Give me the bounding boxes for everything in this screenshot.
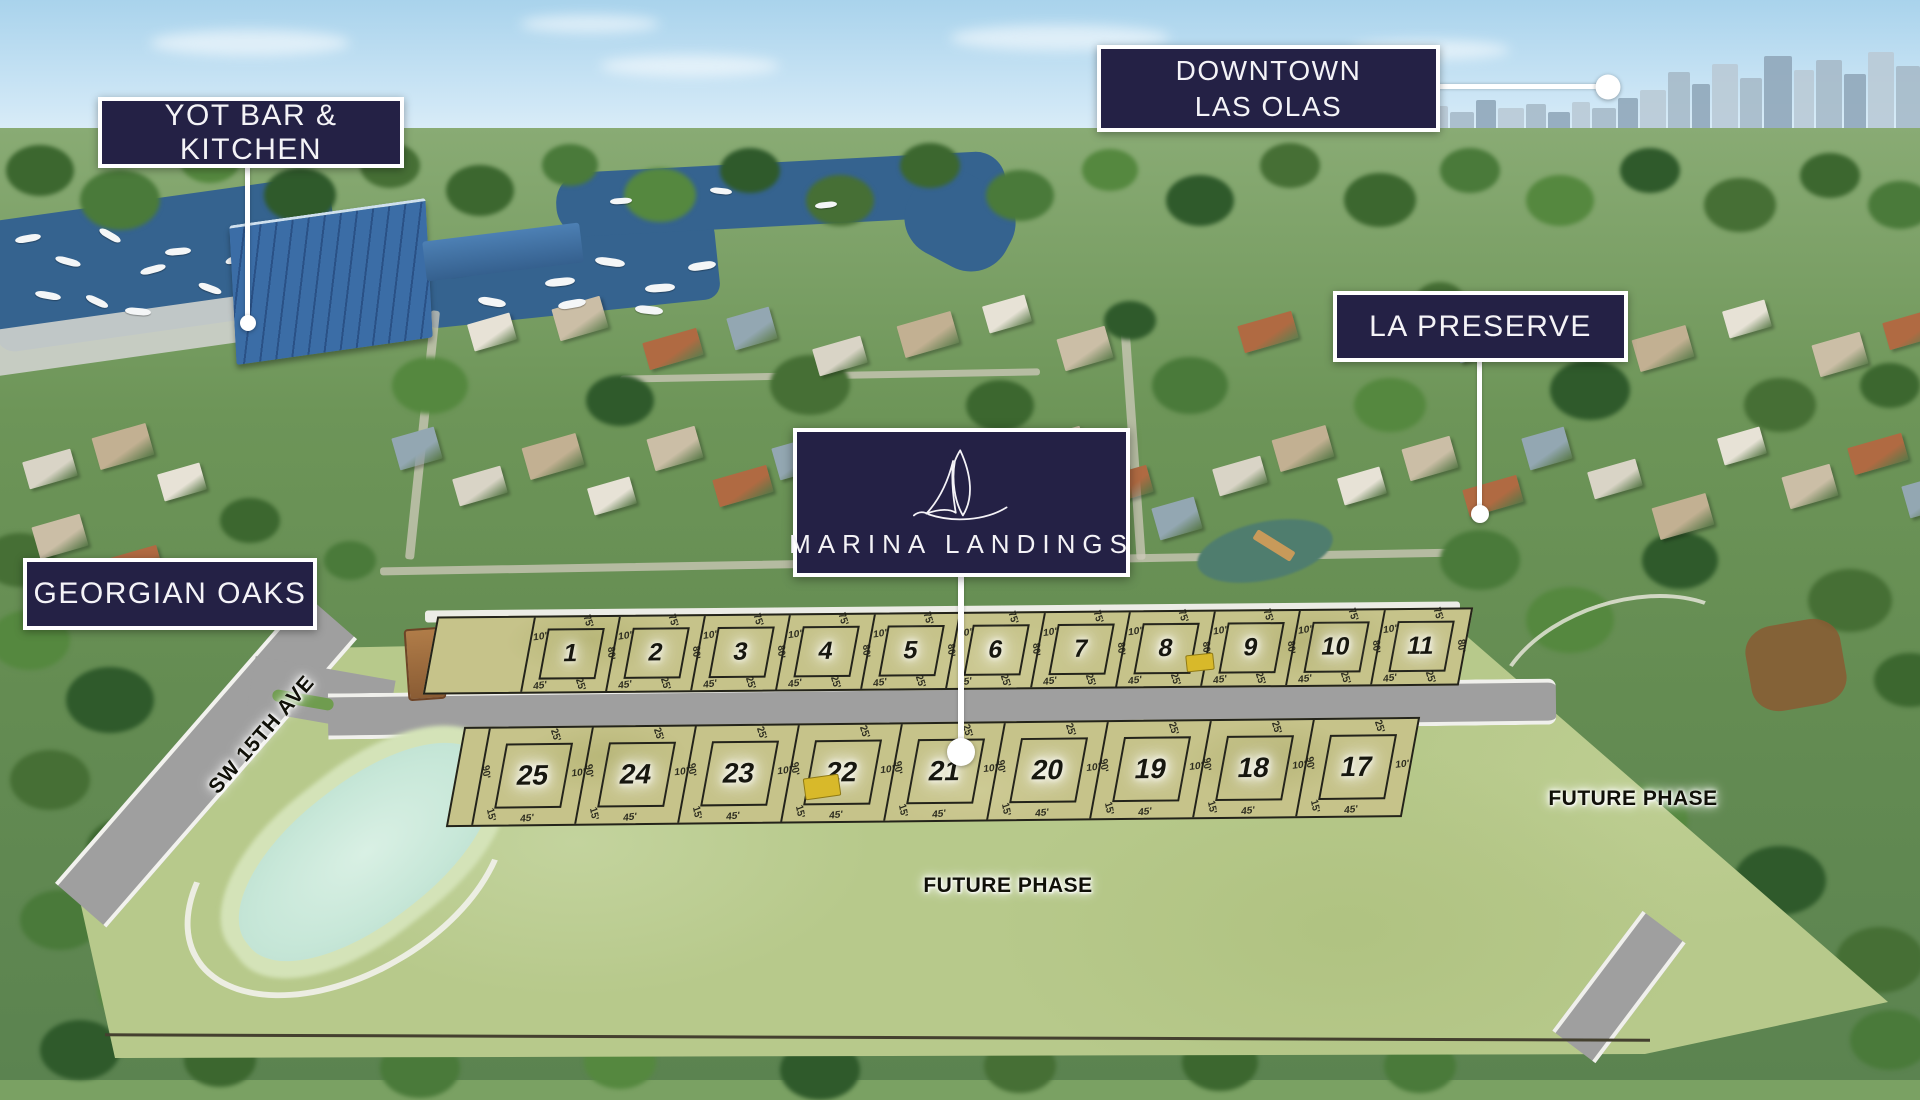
lot-row-south: 2525'10'90'15'45'2425'10'90'15'45'2325'1… — [446, 717, 1420, 827]
lot-dimension: 15' — [1205, 799, 1218, 816]
lot-dimension: 15' — [690, 805, 703, 822]
city-building — [1816, 60, 1842, 138]
lot-dimension: 45' — [1035, 807, 1050, 820]
lot-dimension: 45' — [1128, 674, 1142, 687]
lot-dimension: 45' — [618, 679, 632, 692]
lot-parcel-21: 2125'10'90'15'45' — [883, 723, 1004, 820]
city-building — [1868, 52, 1894, 138]
tree — [542, 144, 598, 186]
lot-parcel-23: 2325'10'90'15'45' — [677, 725, 798, 822]
lot-number: 19 — [1132, 753, 1169, 785]
lot-dimension: 45' — [829, 809, 844, 822]
lot-dimension: 10' — [1383, 623, 1397, 636]
lot-dimension: 25' — [754, 725, 768, 742]
marina-landings-leader-line — [958, 569, 964, 747]
lot-dimension: 90' — [1303, 756, 1315, 772]
lot-dimension: 90' — [994, 759, 1006, 775]
tree — [392, 357, 468, 414]
callout-downtown-line2: LAS OLAS — [1195, 91, 1342, 122]
tree — [10, 750, 90, 810]
callout-yot-bar-kitchen: YOT BAR & KITCHEN — [98, 97, 404, 168]
lot-parcel-17: 1725'10'90'15'45' — [1295, 719, 1416, 816]
tree — [1850, 1010, 1920, 1070]
lot-dimension: 15' — [484, 807, 497, 824]
lot-row-north: 175'10'80'45'25'275'10'80'45'25'375'10'8… — [423, 607, 1473, 694]
tree — [40, 1020, 120, 1080]
tree — [1704, 178, 1776, 232]
lot-dimension: 80' — [1456, 638, 1468, 654]
callout-georgian-oaks: GEORGIAN OAKS — [23, 558, 317, 630]
tree — [1152, 357, 1228, 414]
marina-landings-logo-name: MARINA LANDINGS — [789, 529, 1134, 560]
lot-dimension: 45' — [623, 811, 638, 824]
tree — [1642, 532, 1718, 589]
lot-number: 20 — [1029, 754, 1066, 786]
lot-parcel-22: 2225'10'90'15'45' — [780, 724, 901, 821]
lot-dimension: 45' — [1241, 805, 1256, 818]
callout-georgian-label: GEORGIAN OAKS — [34, 577, 307, 611]
lot-dimension: 15' — [793, 804, 806, 821]
downtown-location-dot — [1596, 75, 1621, 100]
lot-dimension: 90' — [583, 764, 595, 780]
tree — [966, 380, 1034, 431]
cloud — [600, 55, 780, 77]
lot-dimension: 10' — [788, 628, 802, 641]
tree — [1260, 143, 1320, 188]
downtown-leader-line — [1436, 84, 1602, 89]
tree — [586, 375, 654, 426]
lot-parcel-3: 375'10'80'45'25' — [690, 615, 789, 690]
marina-landings-logo-card: MARINA LANDINGS — [793, 428, 1130, 577]
marina-warehouse-building — [229, 198, 432, 365]
tree — [1344, 173, 1416, 227]
callout-downtown-label: DOWNTOWN LAS OLAS — [1176, 53, 1362, 125]
tree — [1526, 175, 1594, 226]
tree — [1800, 153, 1860, 198]
lot-dimension: 45' — [703, 678, 717, 691]
tree — [66, 667, 154, 733]
future-phase-label-center: FUTURE PHASE — [923, 874, 1092, 898]
lot-parcel-9: 975'10'80'45'25' — [1200, 611, 1299, 686]
tree — [1166, 175, 1234, 226]
lot-dimension: 10' — [703, 629, 717, 642]
lot-number: 24 — [617, 758, 654, 790]
tree — [1440, 148, 1500, 193]
future-phase-label-east: FUTURE PHASE — [1548, 787, 1717, 811]
lot-dimension: 10' — [873, 628, 887, 641]
tree — [220, 498, 280, 543]
lot-dimension: 45' — [788, 677, 802, 690]
lot-parcel-18: 1825'10'90'15'45' — [1192, 720, 1313, 817]
tree — [900, 143, 960, 188]
tree — [80, 170, 160, 230]
lot-dimension: 10' — [1213, 625, 1227, 638]
lot-parcel-11: 1175'10'80'45'25' — [1370, 609, 1469, 684]
lot-dimension: 45' — [873, 677, 887, 690]
lot-dimension: 10' — [1043, 626, 1057, 639]
callout-downtown-las-olas: DOWNTOWN LAS OLAS — [1097, 45, 1440, 132]
tree — [1440, 530, 1520, 590]
tree — [624, 168, 696, 222]
tree — [6, 145, 74, 196]
sailboat-icon — [899, 445, 1025, 527]
lot-dimension: 45' — [1298, 673, 1312, 686]
lot-dimension: 90' — [480, 765, 492, 781]
tree — [1744, 378, 1816, 432]
lot-dimension: 15' — [587, 806, 600, 823]
lot-dimension: 45' — [1043, 675, 1057, 688]
lot-dimension: 15' — [1308, 798, 1321, 815]
lot-dimension: 15' — [999, 801, 1012, 818]
city-building — [1712, 64, 1738, 138]
lot-number: 10 — [1319, 632, 1352, 661]
tree — [1104, 301, 1156, 340]
lot-dimension: 25' — [1166, 720, 1180, 737]
tree — [806, 175, 874, 226]
preserve-location-dot — [1471, 505, 1489, 523]
lot-number: 25 — [514, 759, 551, 791]
tree — [324, 541, 376, 580]
tree — [1620, 148, 1680, 193]
lot-number: 11 — [1405, 632, 1437, 661]
lot-parcel-5: 575'10'80'45'25' — [860, 614, 959, 689]
lot-parcel-25: 2525'10'90'15'45' — [471, 728, 592, 825]
lot-number: 18 — [1235, 752, 1272, 784]
lot-dimension: 25' — [1372, 718, 1386, 735]
construction-loader-vehicle — [1185, 653, 1215, 673]
lot-dimension: 45' — [1138, 806, 1153, 819]
lot-dimension: 90' — [1200, 757, 1212, 773]
lot-dimension: 45' — [726, 810, 741, 823]
tree — [986, 170, 1054, 221]
tree — [1354, 378, 1426, 432]
lot-dimension: 25' — [651, 726, 665, 743]
lot-dimension: 10' — [1128, 625, 1142, 638]
lot-parcel-8: 875'10'80'45'25' — [1115, 612, 1214, 687]
cloud — [150, 30, 350, 56]
tree — [1550, 360, 1630, 420]
lot-dimension: 90' — [892, 760, 904, 776]
aerial-site-plan: { "colors":{ "badge_background":"#242145… — [0, 0, 1920, 1080]
yot-location-dot — [240, 315, 256, 331]
lot-parcel-7: 775'10'80'45'25' — [1030, 612, 1129, 687]
lot-parcel-19: 1925'10'90'15'45' — [1089, 721, 1210, 818]
tree — [1082, 149, 1138, 191]
lot-dimension: 45' — [520, 812, 535, 825]
preserve-leader-line — [1477, 354, 1482, 510]
lot-number: 17 — [1338, 751, 1375, 783]
lot-dimension: 45' — [1344, 804, 1359, 817]
lot-parcel-4: 475'10'80'45'25' — [775, 615, 874, 690]
lot-parcel-1: 175'10'80'45'25' — [520, 617, 619, 692]
tree — [446, 165, 514, 216]
callout-downtown-line1: DOWNTOWN — [1176, 55, 1362, 86]
yot-leader-line — [245, 164, 250, 319]
lot-dimension: 90' — [1097, 758, 1109, 774]
lot-dimension: 45' — [932, 808, 947, 821]
lot-number: 23 — [720, 757, 757, 789]
lot-dimension: 45' — [1383, 672, 1397, 685]
lot-dimension: 10' — [533, 631, 547, 644]
lot-parcel-2: 275'10'80'45'25' — [605, 616, 704, 691]
tree — [1860, 363, 1920, 408]
tree — [720, 148, 780, 193]
lot-dimension: 10' — [1395, 759, 1410, 772]
lot-dimension: 10' — [1298, 624, 1312, 637]
lot-dimension: 45' — [533, 680, 547, 693]
callout-preserve-label: LA PRESERVE — [1369, 310, 1592, 344]
city-building — [1764, 56, 1792, 138]
lot-dimension: 45' — [1213, 674, 1227, 687]
lot-dimension: 25' — [1063, 722, 1077, 739]
lot-parcel-20: 2025'10'90'15'45' — [986, 722, 1107, 819]
cloud — [520, 15, 660, 33]
lot-dimension: 10' — [618, 630, 632, 643]
lot-parcel-24: 2425'10'90'15'45' — [574, 726, 695, 823]
lot-parcel-10: 1075'10'80'45'25' — [1285, 610, 1384, 685]
lot-dimension: 90' — [686, 762, 698, 778]
callout-yot-label: YOT BAR & KITCHEN — [102, 99, 400, 167]
lot-dimension: 25' — [1269, 719, 1283, 736]
callout-la-preserve: LA PRESERVE — [1333, 291, 1628, 362]
lot-dimension: 15' — [896, 803, 909, 820]
lot-dimension: 15' — [1102, 800, 1115, 817]
lot-dimension: 25' — [857, 724, 871, 741]
marina-landings-location-dot — [947, 738, 975, 766]
lot-dimension: 25' — [548, 727, 562, 744]
lot-dimension: 90' — [789, 761, 801, 777]
